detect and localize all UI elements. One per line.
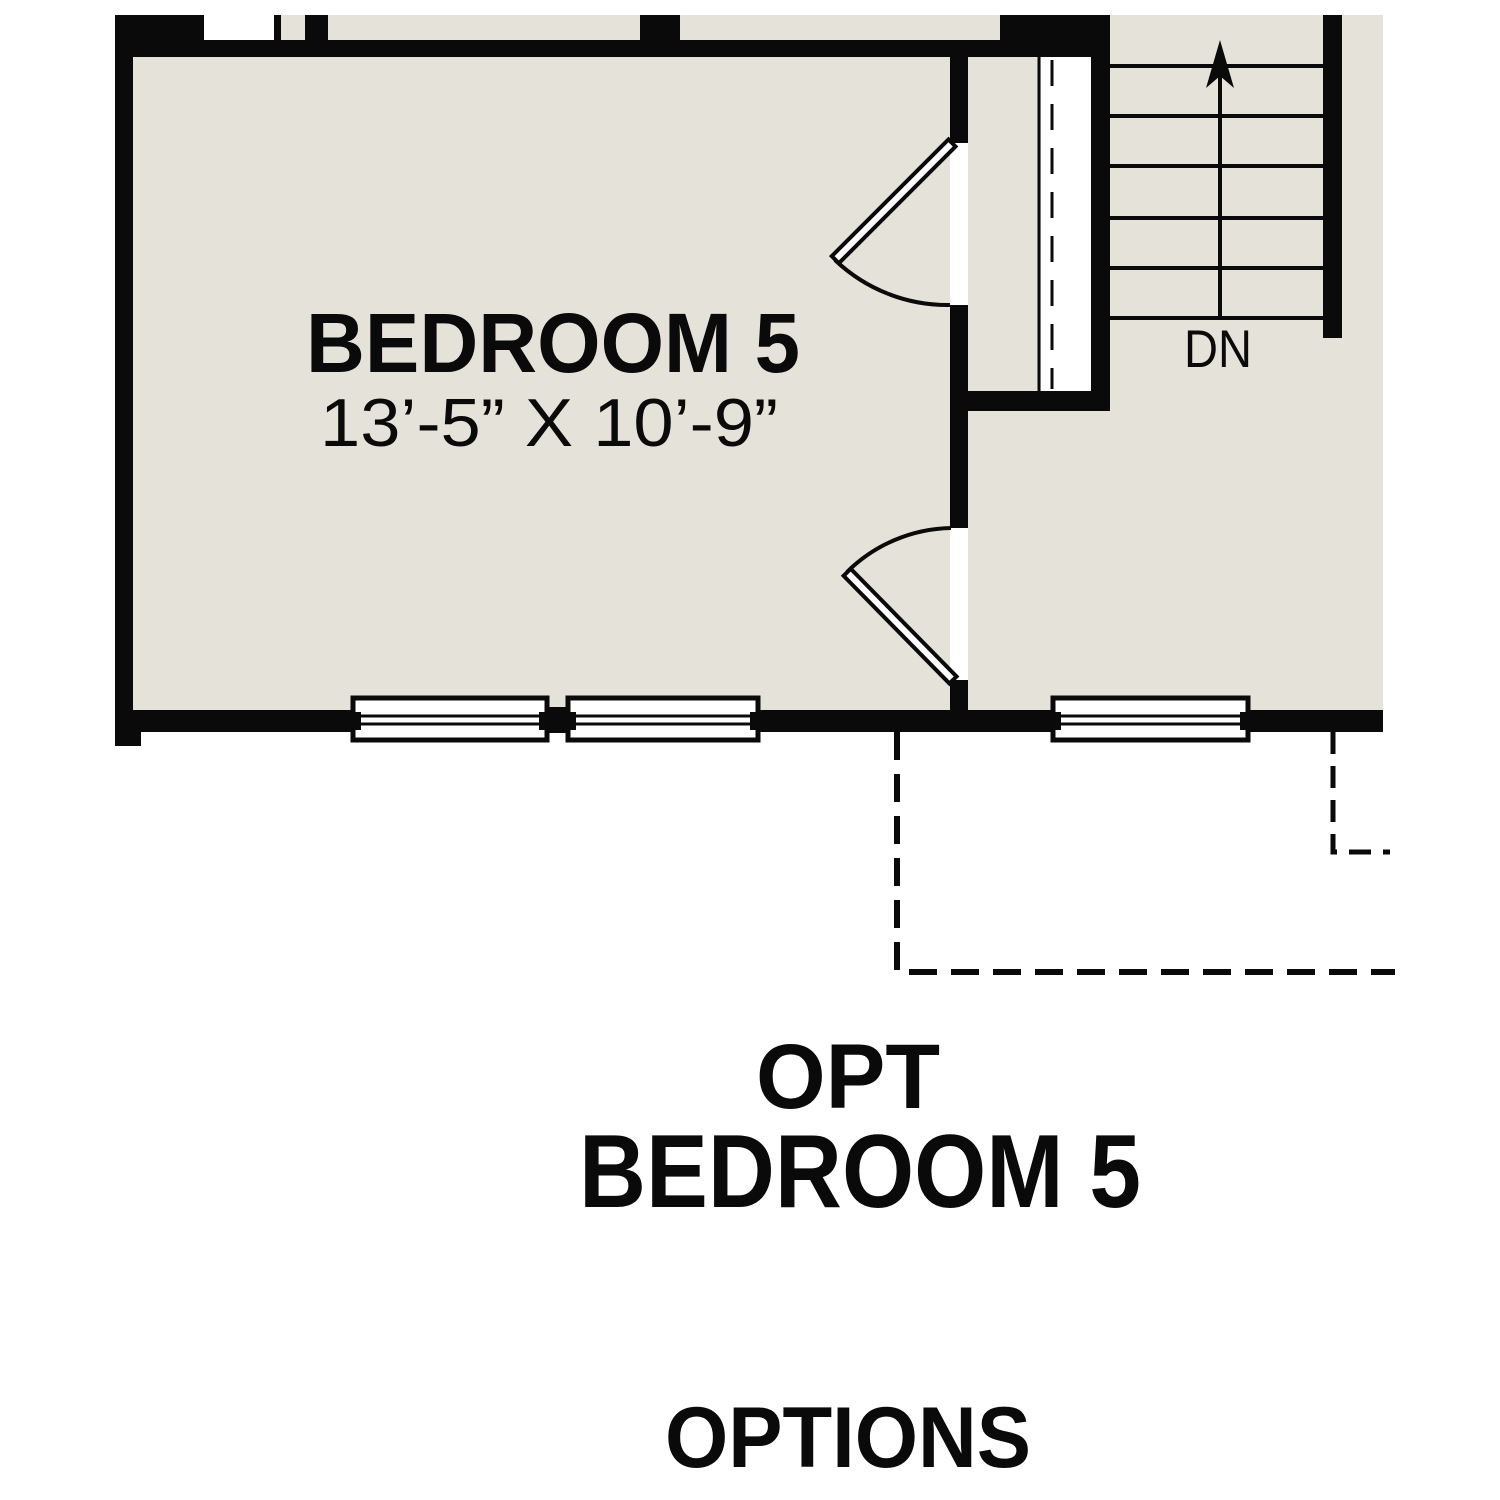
wall-segment	[1248, 710, 1383, 732]
wall-segment	[1000, 15, 1110, 57]
wall-segment	[115, 710, 141, 746]
options-footer-label: OPTIONS	[665, 1390, 1031, 1486]
optional-area-dashed-boundary	[897, 732, 1395, 972]
window-wall-stub	[750, 712, 758, 730]
window-wall-stub	[353, 712, 361, 730]
room-label: BEDROOM 5	[306, 296, 800, 390]
wall-segment	[115, 15, 133, 732]
floor-stair-top	[1110, 15, 1383, 57]
wall-segment	[950, 680, 968, 710]
wall-segment	[950, 305, 968, 528]
window	[353, 698, 547, 740]
wall-segment	[1091, 53, 1110, 411]
wall-segment	[950, 40, 968, 143]
window-wall-stub	[1240, 712, 1248, 730]
window	[1053, 698, 1248, 740]
window-wall-stub	[1053, 712, 1061, 730]
window-wall-stub	[539, 712, 547, 730]
wall-segment	[115, 710, 353, 732]
caption-line-1: OPT	[756, 1026, 940, 1128]
wall-segment	[115, 40, 1000, 57]
caption-line-2: BEDROOM 5	[579, 1114, 1141, 1230]
wall-segment	[640, 15, 680, 40]
wall-segment	[758, 710, 1053, 732]
wall-segment	[950, 391, 1110, 411]
wall-segment	[274, 15, 281, 40]
window	[568, 698, 758, 740]
optional-area-dashed-bracket	[1333, 732, 1390, 852]
floor-plan: BEDROOM 5 13’-5” X 10’-9” DN OPT BEDROOM…	[0, 0, 1500, 1500]
room-dimensions: 13’-5” X 10’-9”	[320, 385, 778, 461]
floor-hall	[968, 57, 1383, 710]
stair-down-label: DN	[1184, 320, 1252, 379]
window-wall-stub	[568, 712, 576, 730]
stairwell-void	[1041, 57, 1091, 391]
wall-segment	[547, 707, 568, 733]
wall-segment	[1323, 15, 1342, 338]
optional-area-outline	[897, 732, 1395, 972]
wall-segment	[305, 15, 328, 40]
